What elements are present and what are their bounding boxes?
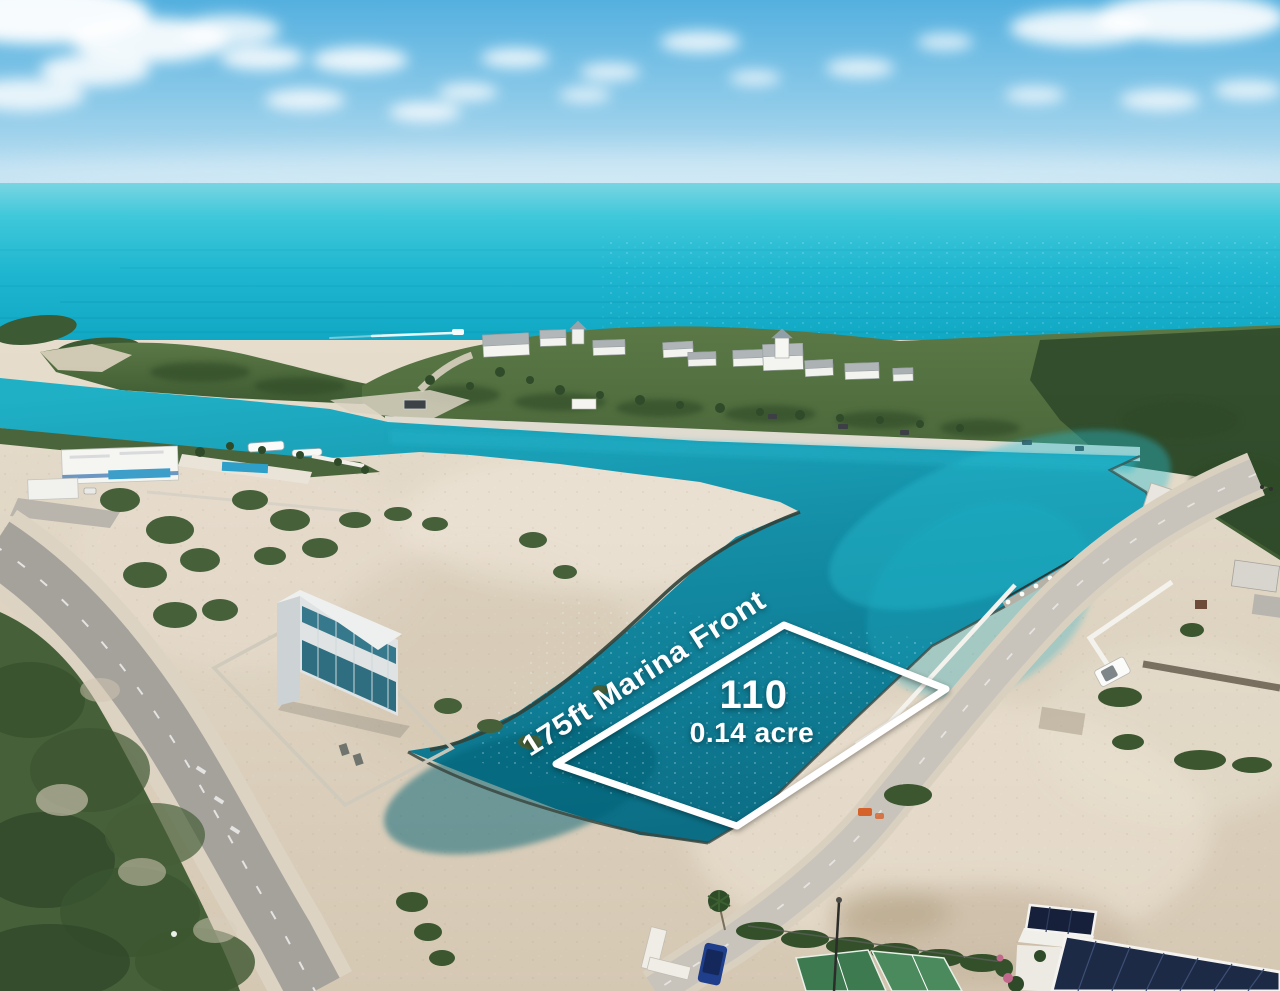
lot-area-label: 0.14 acre [690, 717, 814, 748]
mansion [805, 359, 834, 376]
mansion [540, 330, 567, 347]
mansion [593, 339, 626, 355]
garage [28, 478, 79, 500]
flower-bush [1003, 973, 1013, 983]
aerial-photo: 175ft Marina Front 110 0.14 acre [0, 0, 1280, 991]
mansion [845, 362, 880, 379]
mansion [482, 333, 529, 357]
lot-number-label: 110 [719, 673, 788, 717]
left-villa [61, 446, 178, 484]
barge [404, 400, 426, 409]
mansion [733, 349, 764, 366]
speedboat [452, 329, 464, 335]
parked-car [84, 488, 96, 494]
mansion [688, 352, 716, 367]
mansion [893, 368, 913, 382]
white-bird [171, 931, 177, 937]
white-truck [572, 399, 596, 409]
